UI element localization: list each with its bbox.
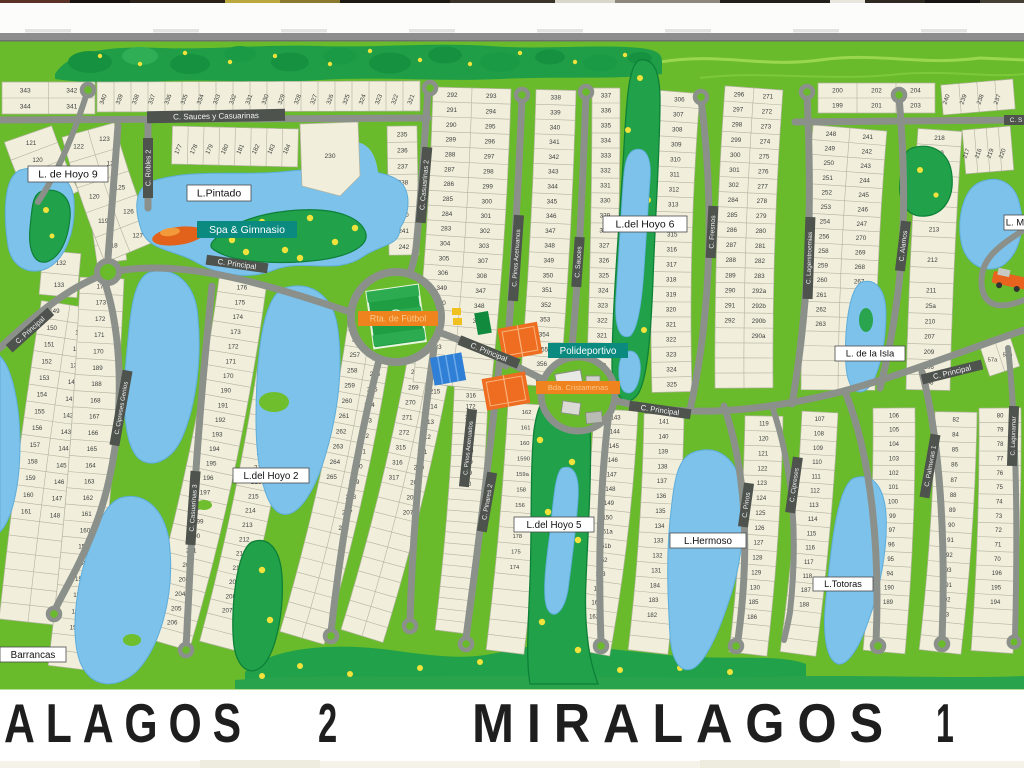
svg-text:346: 346 [546,213,557,220]
svg-text:108: 108 [814,432,825,438]
svg-text:79: 79 [997,428,1004,434]
svg-text:218: 218 [934,135,945,142]
svg-text:190: 190 [220,388,231,395]
svg-text:133: 133 [653,539,664,545]
svg-text:304: 304 [440,241,451,248]
svg-text:344: 344 [547,184,558,191]
svg-text:335: 335 [601,123,612,130]
svg-text:306: 306 [438,270,449,277]
svg-text:290a: 290a [751,333,766,340]
svg-text:290: 290 [446,122,457,129]
svg-text:91: 91 [947,538,954,544]
svg-text:263: 263 [815,321,826,328]
svg-text:162: 162 [83,495,94,502]
svg-text:110: 110 [812,460,822,466]
svg-text:76: 76 [996,471,1003,477]
svg-text:143: 143 [61,429,72,436]
svg-text:260: 260 [342,398,353,405]
svg-text:194: 194 [990,600,1001,606]
svg-text:163: 163 [84,479,95,486]
svg-text:212: 212 [239,536,250,543]
svg-text:128: 128 [752,556,763,562]
svg-text:347: 347 [475,288,486,295]
svg-text:141: 141 [659,420,670,426]
svg-text:71: 71 [995,543,1002,549]
svg-text:160: 160 [520,441,530,447]
svg-text:297: 297 [484,153,495,160]
svg-text:149: 149 [604,501,615,507]
svg-text:96: 96 [888,543,895,549]
svg-text:144: 144 [58,446,69,453]
svg-text:151: 151 [44,342,55,349]
svg-text:121: 121 [758,451,769,457]
svg-text:202: 202 [871,88,882,95]
svg-text:253: 253 [820,204,831,211]
svg-text:C. S: C. S [1010,117,1022,124]
svg-text:104: 104 [889,442,900,448]
svg-text:194: 194 [209,446,220,453]
svg-text:354: 354 [539,332,550,339]
svg-text:85: 85 [952,448,959,454]
svg-text:298: 298 [732,122,743,129]
svg-text:195: 195 [206,461,217,468]
svg-text:308: 308 [476,273,487,280]
svg-text:348: 348 [544,243,555,250]
svg-text:264: 264 [330,459,341,466]
svg-text:199: 199 [832,103,843,110]
svg-text:172: 172 [228,344,239,351]
svg-text:215: 215 [248,493,259,500]
svg-text:Barrancas: Barrancas [11,650,56,661]
svg-text:ALAGOS: ALAGOS [4,692,252,754]
svg-text:348: 348 [474,303,485,310]
svg-text:296: 296 [484,138,495,145]
svg-text:312: 312 [669,187,680,194]
svg-text:344: 344 [20,103,31,110]
svg-text:197: 197 [200,490,211,497]
svg-text:285: 285 [443,196,454,203]
svg-text:331: 331 [600,183,611,190]
svg-text:73: 73 [996,514,1003,520]
svg-text:174: 174 [233,314,244,321]
svg-text:Spa & Gimnasio: Spa & Gimnasio [209,224,285,236]
svg-text:351: 351 [542,287,553,294]
svg-text:256: 256 [819,233,830,240]
svg-text:265: 265 [326,474,337,481]
svg-text:303: 303 [479,243,490,250]
svg-text:154: 154 [37,392,48,399]
svg-text:287: 287 [726,242,737,249]
svg-text:288: 288 [445,152,456,159]
svg-text:107: 107 [815,417,826,423]
svg-text:263: 263 [333,444,344,451]
svg-text:322: 322 [666,337,677,344]
svg-text:MIRALAGOS: MIRALAGOS [472,692,896,754]
svg-text:326: 326 [599,258,610,265]
svg-text:262: 262 [816,307,827,314]
svg-text:165: 165 [87,446,98,453]
svg-text:236: 236 [397,147,408,154]
svg-text:204: 204 [910,88,921,95]
svg-text:161: 161 [521,425,531,431]
svg-text:184: 184 [650,583,661,589]
svg-text:161: 161 [81,511,92,518]
svg-text:277: 277 [757,183,768,190]
svg-text:336: 336 [601,108,612,115]
svg-text:324: 324 [598,288,609,295]
svg-text:195: 195 [991,586,1002,592]
svg-text:106: 106 [889,413,900,419]
svg-text:293: 293 [486,93,497,100]
svg-text:270: 270 [405,399,416,406]
svg-text:94: 94 [887,571,894,577]
svg-text:333: 333 [600,153,611,160]
svg-text:178: 178 [512,534,522,540]
svg-text:132: 132 [56,260,67,267]
svg-text:244: 244 [859,177,870,184]
svg-text:290b: 290b [752,318,767,325]
svg-text:302: 302 [728,182,739,189]
svg-text:146: 146 [54,479,65,486]
svg-text:241: 241 [863,134,874,141]
svg-text:138: 138 [657,464,668,470]
svg-text:334: 334 [601,138,612,145]
svg-text:175: 175 [511,550,521,556]
svg-text:147: 147 [607,473,618,479]
svg-text:182: 182 [647,613,658,619]
svg-text:111: 111 [812,474,822,480]
svg-text:136: 136 [656,494,667,500]
svg-text:327: 327 [599,243,610,250]
svg-text:75: 75 [996,485,1003,491]
svg-text:174: 174 [510,565,520,571]
svg-text:115: 115 [807,531,817,537]
svg-text:341: 341 [66,103,77,110]
svg-text:122: 122 [73,143,84,150]
svg-text:281: 281 [755,243,766,250]
svg-text:193: 193 [212,432,223,439]
svg-text:315: 315 [396,444,407,451]
svg-text:270: 270 [856,235,867,242]
svg-text:159: 159 [25,475,36,482]
svg-text:147: 147 [52,496,63,503]
svg-text:317: 317 [389,474,400,481]
svg-text:301: 301 [729,167,740,174]
svg-text:1: 1 [936,692,962,754]
svg-text:176: 176 [237,285,248,292]
svg-text:C. Robles 2: C. Robles 2 [145,150,152,187]
svg-text:292b: 292b [752,303,767,310]
svg-text:349: 349 [544,258,555,265]
svg-text:350: 350 [543,272,554,279]
svg-text:L. de Hoyo 9: L. de Hoyo 9 [38,169,98,181]
svg-text:80: 80 [997,413,1004,419]
svg-text:92: 92 [946,553,953,559]
svg-text:112: 112 [810,489,820,495]
svg-text:214: 214 [245,508,256,515]
svg-text:97: 97 [889,528,896,534]
svg-text:84: 84 [952,433,959,439]
svg-text:242: 242 [399,244,410,251]
svg-text:2: 2 [318,692,346,754]
svg-text:311: 311 [670,172,681,179]
svg-text:82: 82 [953,418,960,424]
svg-text:145: 145 [56,462,67,469]
svg-text:299: 299 [731,137,742,144]
svg-text:262: 262 [336,428,347,435]
svg-text:345: 345 [547,198,558,205]
svg-text:349: 349 [436,285,447,292]
svg-text:272: 272 [762,109,773,116]
svg-text:95: 95 [887,557,894,563]
svg-text:156: 156 [32,425,43,432]
svg-text:324: 324 [666,367,677,374]
svg-text:114: 114 [808,517,818,523]
svg-text:72: 72 [995,528,1002,534]
svg-text:315: 315 [667,232,678,239]
svg-text:285: 285 [727,212,738,219]
svg-text:332: 332 [600,168,611,175]
svg-text:271: 271 [763,94,774,101]
svg-text:164: 164 [85,462,96,469]
svg-text:347: 347 [545,228,556,235]
svg-text:120: 120 [89,193,100,200]
svg-text:276: 276 [758,168,769,175]
svg-text:352: 352 [541,302,552,309]
svg-text:341: 341 [549,139,560,146]
svg-text:291: 291 [447,107,458,114]
svg-text:148: 148 [50,512,61,519]
svg-text:316: 316 [392,459,403,466]
svg-text:235: 235 [397,131,408,138]
svg-text:Bda. Cristamenas: Bda. Cristamenas [548,383,609,392]
svg-text:173: 173 [230,329,241,336]
svg-text:257: 257 [350,352,361,359]
svg-text:250: 250 [823,160,834,167]
svg-text:130: 130 [750,585,761,591]
svg-text:132: 132 [652,554,663,560]
svg-text:298: 298 [483,168,494,175]
svg-text:283: 283 [441,226,452,233]
svg-text:356: 356 [537,361,548,368]
svg-text:170: 170 [223,373,234,380]
svg-text:295: 295 [485,123,496,130]
svg-text:175: 175 [235,299,246,306]
svg-text:89: 89 [949,508,956,514]
svg-text:192: 192 [215,417,226,424]
svg-text:302: 302 [480,228,491,235]
svg-text:168: 168 [90,397,101,404]
svg-text:172: 172 [95,316,106,323]
svg-text:167: 167 [89,414,100,421]
svg-text:90: 90 [948,523,955,529]
svg-text:271: 271 [402,414,413,421]
svg-text:343: 343 [20,87,31,94]
svg-text:321: 321 [597,333,608,340]
svg-text:183: 183 [648,598,659,604]
svg-text:280: 280 [756,228,767,235]
svg-text:200: 200 [832,88,843,95]
svg-text:102: 102 [889,471,900,477]
svg-text:C. Lagunamar: C. Lagunamar [1009,416,1017,455]
svg-text:307: 307 [478,258,489,265]
svg-text:170: 170 [93,349,104,356]
svg-text:196: 196 [203,475,214,482]
svg-text:99: 99 [889,514,896,520]
svg-text:210: 210 [925,318,936,325]
svg-text:306: 306 [674,97,685,104]
svg-text:191: 191 [218,402,229,409]
svg-text:322: 322 [597,318,608,325]
svg-text:203: 203 [910,103,921,110]
svg-text:273: 273 [761,124,772,131]
svg-text:Rta. de Fútbol: Rta. de Fútbol [370,314,427,324]
svg-text:287: 287 [444,166,455,173]
svg-text:145: 145 [609,444,620,450]
svg-text:156: 156 [515,503,525,509]
svg-text:330: 330 [600,198,611,205]
svg-text:291: 291 [725,302,736,309]
svg-text:251: 251 [822,175,833,182]
svg-text:120: 120 [32,157,43,164]
svg-text:300: 300 [730,152,741,159]
svg-text:L.del Hoyo 5: L.del Hoyo 5 [526,520,582,531]
svg-text:284: 284 [728,197,739,204]
svg-text:127: 127 [132,232,143,239]
svg-text:70: 70 [994,557,1001,563]
svg-text:272: 272 [399,429,410,436]
svg-text:279: 279 [756,213,767,220]
svg-text:117: 117 [804,560,814,566]
svg-text:294: 294 [486,108,497,115]
svg-text:158: 158 [27,459,38,466]
svg-text:343: 343 [548,169,559,176]
svg-text:260: 260 [817,277,828,284]
svg-text:292a: 292a [752,288,767,295]
svg-text:307: 307 [673,112,684,119]
svg-text:316: 316 [466,394,477,400]
svg-text:211: 211 [926,288,937,295]
svg-text:109: 109 [813,446,824,452]
svg-text:299: 299 [482,183,493,190]
svg-text:296: 296 [734,92,745,99]
svg-text:247: 247 [857,221,868,228]
svg-text:286: 286 [727,227,738,234]
svg-text:258: 258 [818,248,829,255]
svg-text:259: 259 [344,383,355,390]
svg-text:L.Hermoso: L.Hermoso [684,536,732,547]
svg-text:278: 278 [757,198,768,205]
svg-text:313: 313 [668,202,679,209]
svg-text:78: 78 [997,442,1004,448]
svg-text:269: 269 [855,250,866,257]
svg-text:317: 317 [666,262,677,269]
svg-text:353: 353 [540,317,551,324]
svg-text:283: 283 [754,273,765,280]
svg-text:305: 305 [439,255,450,262]
svg-text:286: 286 [443,181,454,188]
svg-text:275: 275 [759,153,770,160]
svg-text:173: 173 [96,300,107,307]
svg-text:288: 288 [726,257,737,264]
svg-text:338: 338 [551,95,562,102]
svg-text:135: 135 [655,509,666,515]
svg-text:103: 103 [889,456,900,462]
svg-text:153: 153 [39,375,50,382]
svg-text:259: 259 [817,263,828,270]
svg-text:237: 237 [397,164,408,171]
svg-text:148: 148 [605,487,616,493]
svg-text:157: 157 [30,442,41,449]
svg-text:133: 133 [54,282,65,289]
svg-text:118: 118 [803,574,813,580]
svg-text:242: 242 [861,148,872,155]
svg-text:318: 318 [666,277,677,284]
svg-text:261: 261 [816,292,827,299]
svg-text:129: 129 [751,571,762,577]
svg-text:245: 245 [858,192,869,199]
svg-text:L.Totoras: L.Totoras [824,579,862,589]
svg-text:86: 86 [951,463,958,469]
svg-text:1590: 1590 [517,456,530,462]
svg-text:140: 140 [658,435,669,441]
svg-text:126: 126 [123,209,134,216]
svg-text:206: 206 [167,620,178,627]
svg-text:325: 325 [598,273,609,280]
svg-text:143: 143 [611,415,622,421]
svg-text:121: 121 [26,140,37,147]
svg-text:L.del Hoyo 6: L.del Hoyo 6 [616,219,675,231]
svg-text:161: 161 [21,509,32,516]
svg-text:292: 292 [447,92,458,99]
svg-text:301: 301 [481,213,492,220]
svg-text:290: 290 [725,287,736,294]
svg-text:144: 144 [610,430,621,436]
svg-text:289: 289 [725,272,736,279]
svg-text:340: 340 [550,124,561,131]
svg-text:212: 212 [927,257,938,264]
svg-text:C. Sauces y Casuarinas: C. Sauces y Casuarinas [173,111,259,121]
svg-text:100: 100 [888,500,899,506]
svg-text:131: 131 [651,569,662,575]
svg-text:186: 186 [747,615,758,621]
svg-text:274: 274 [760,139,771,146]
svg-text:300: 300 [482,198,493,205]
svg-text:74: 74 [996,500,1003,506]
svg-text:342: 342 [549,154,560,161]
svg-text:119: 119 [759,422,769,428]
svg-text:171: 171 [94,332,105,339]
svg-text:282: 282 [755,258,766,265]
svg-text:207: 207 [924,334,935,341]
svg-text:57a: 57a [988,358,998,364]
svg-text:105: 105 [889,428,900,434]
svg-text:137: 137 [657,479,668,485]
svg-text:209: 209 [924,349,935,356]
svg-text:201: 201 [871,103,882,110]
svg-text:123: 123 [757,481,768,487]
svg-text:188: 188 [91,381,102,388]
svg-text:25a: 25a [925,303,936,310]
svg-text:205: 205 [171,605,182,612]
svg-text:116: 116 [805,546,815,552]
svg-text:292: 292 [724,318,735,325]
svg-text:77: 77 [997,456,1004,462]
svg-text:246: 246 [857,206,868,213]
svg-text:213: 213 [242,522,253,529]
svg-text:204: 204 [175,591,186,598]
svg-text:L.del Hoyo 2: L.del Hoyo 2 [243,471,298,482]
